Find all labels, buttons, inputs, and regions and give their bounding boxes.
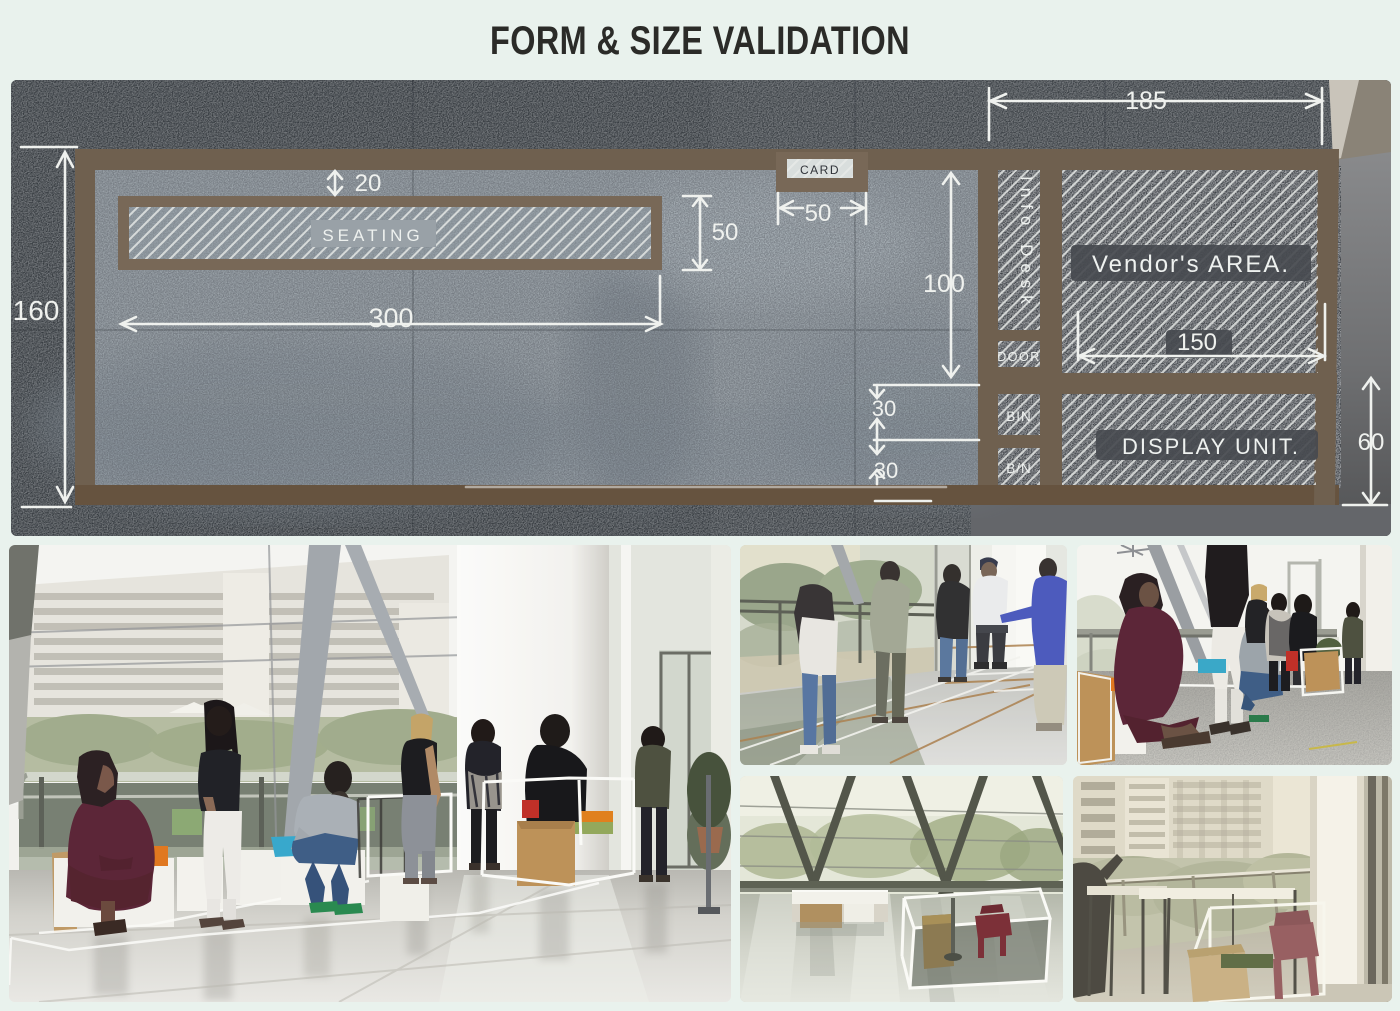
- svg-text:SEATING: SEATING: [322, 226, 423, 245]
- svg-text:Info Desk: Info Desk: [1017, 176, 1036, 311]
- svg-text:185: 185: [1125, 87, 1167, 115]
- svg-text:60: 60: [1358, 429, 1385, 456]
- svg-text:160: 160: [13, 295, 60, 326]
- svg-text:CARD: CARD: [800, 163, 840, 177]
- svg-text:BIN: BIN: [1006, 409, 1032, 424]
- svg-text:DOOR: DOOR: [997, 350, 1041, 364]
- svg-text:30: 30: [874, 458, 898, 483]
- svg-text:150: 150: [1177, 329, 1217, 356]
- svg-text:DISPLAY UNIT.: DISPLAY UNIT.: [1122, 434, 1300, 459]
- svg-text:50: 50: [712, 219, 739, 246]
- svg-text:100: 100: [923, 270, 965, 298]
- svg-text:50: 50: [805, 200, 832, 227]
- svg-text:30: 30: [872, 396, 896, 421]
- svg-text:Vendor's AREA.: Vendor's AREA.: [1092, 251, 1290, 278]
- svg-text:B/N: B/N: [1006, 461, 1032, 476]
- svg-text:20: 20: [355, 170, 382, 197]
- svg-text:300: 300: [368, 303, 413, 333]
